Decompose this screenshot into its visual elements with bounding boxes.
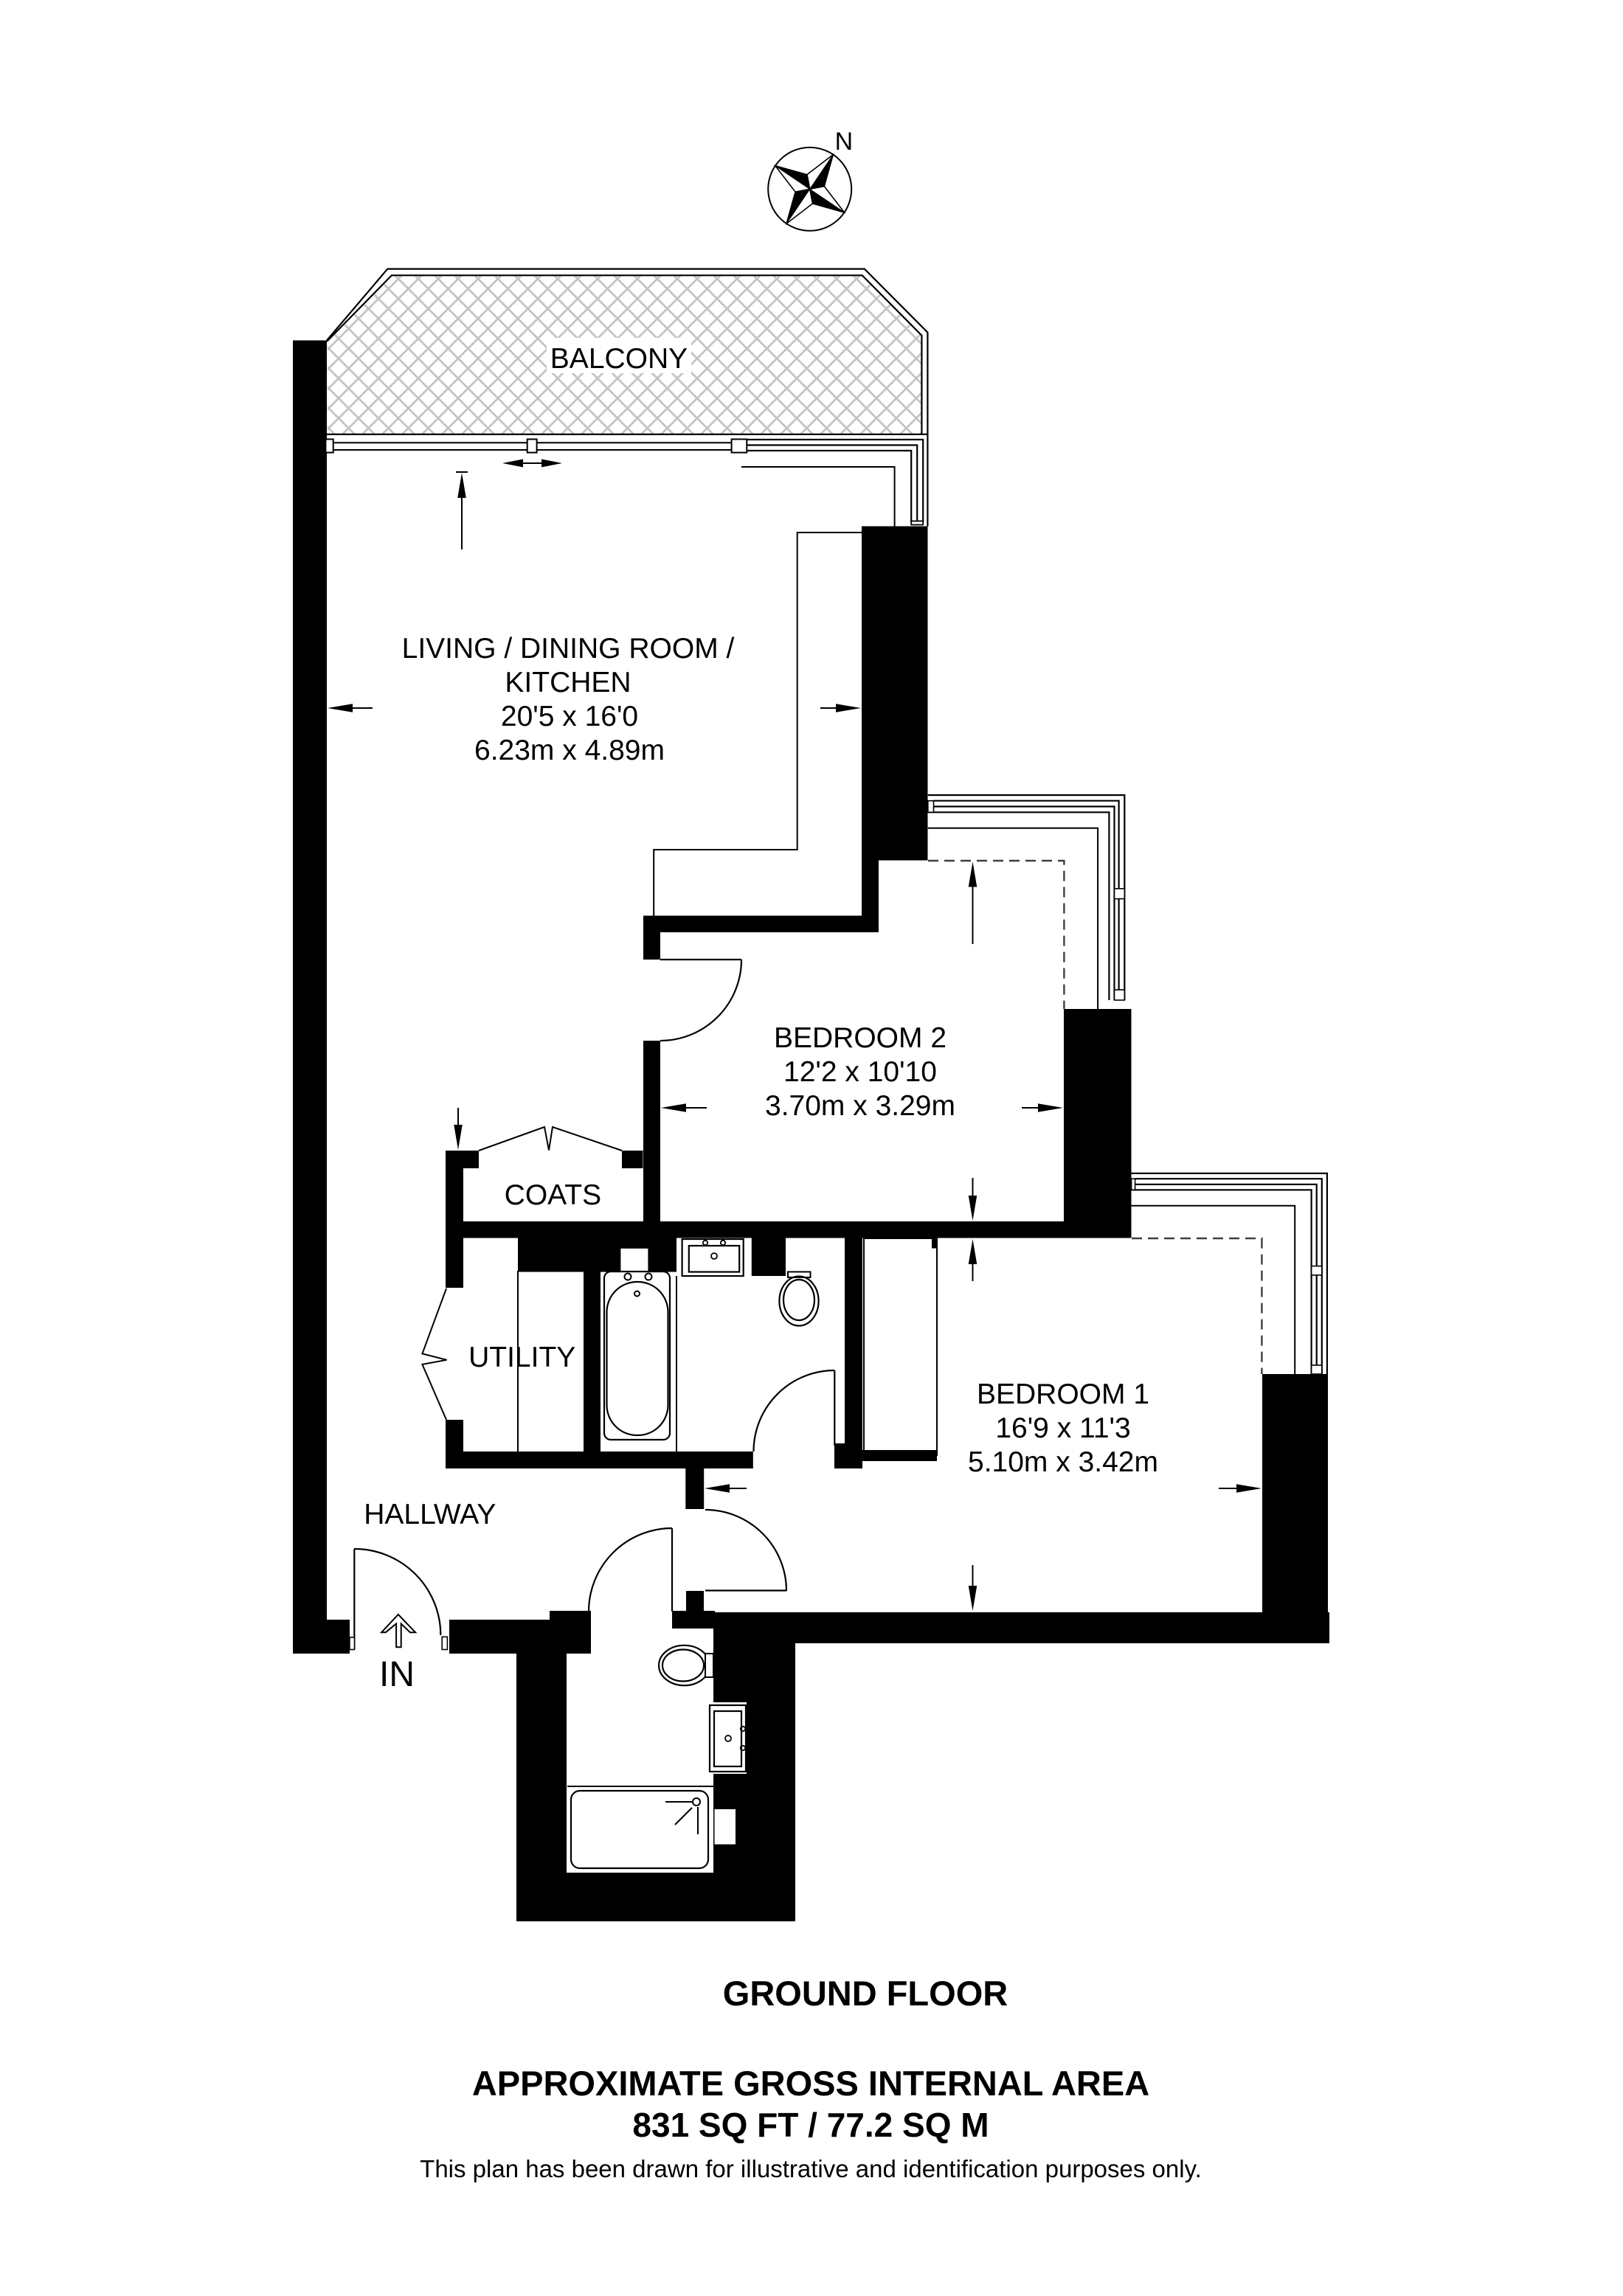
svg-text:This plan has been drawn for i: This plan has been drawn for illustrativ… bbox=[420, 2155, 1202, 2182]
svg-text:BEDROOM 1: BEDROOM 1 bbox=[977, 1378, 1149, 1410]
svg-text:BEDROOM 2: BEDROOM 2 bbox=[774, 1022, 947, 1054]
svg-text:6.23m x 4.89m: 6.23m x 4.89m bbox=[474, 735, 665, 766]
svg-text:GROUND FLOOR: GROUND FLOOR bbox=[723, 1974, 1008, 2013]
svg-text:3.70m x 3.29m: 3.70m x 3.29m bbox=[765, 1090, 955, 1122]
svg-text:5.10m x 3.42m: 5.10m x 3.42m bbox=[968, 1446, 1158, 1478]
svg-text:IN: IN bbox=[379, 1655, 415, 1694]
svg-text:BALCONY: BALCONY bbox=[550, 343, 688, 375]
svg-text:LIVING / DINING ROOM /: LIVING / DINING ROOM / bbox=[402, 633, 735, 665]
svg-text:20'5 x 16'0: 20'5 x 16'0 bbox=[501, 701, 638, 732]
svg-text:KITCHEN: KITCHEN bbox=[505, 667, 631, 698]
svg-text:12'2 x 10'10: 12'2 x 10'10 bbox=[783, 1056, 937, 1088]
svg-text:APPROXIMATE GROSS INTERNAL ARE: APPROXIMATE GROSS INTERNAL AREA bbox=[472, 2064, 1149, 2103]
svg-text:N: N bbox=[835, 128, 854, 156]
svg-text:HALLWAY: HALLWAY bbox=[364, 1499, 496, 1530]
svg-text:831 SQ FT / 77.2 SQ M: 831 SQ FT / 77.2 SQ M bbox=[632, 2106, 989, 2144]
svg-text:16'9 x 11'3: 16'9 x 11'3 bbox=[995, 1412, 1130, 1444]
svg-text:UTILITY: UTILITY bbox=[468, 1342, 575, 1373]
svg-text:COATS: COATS bbox=[505, 1179, 601, 1211]
